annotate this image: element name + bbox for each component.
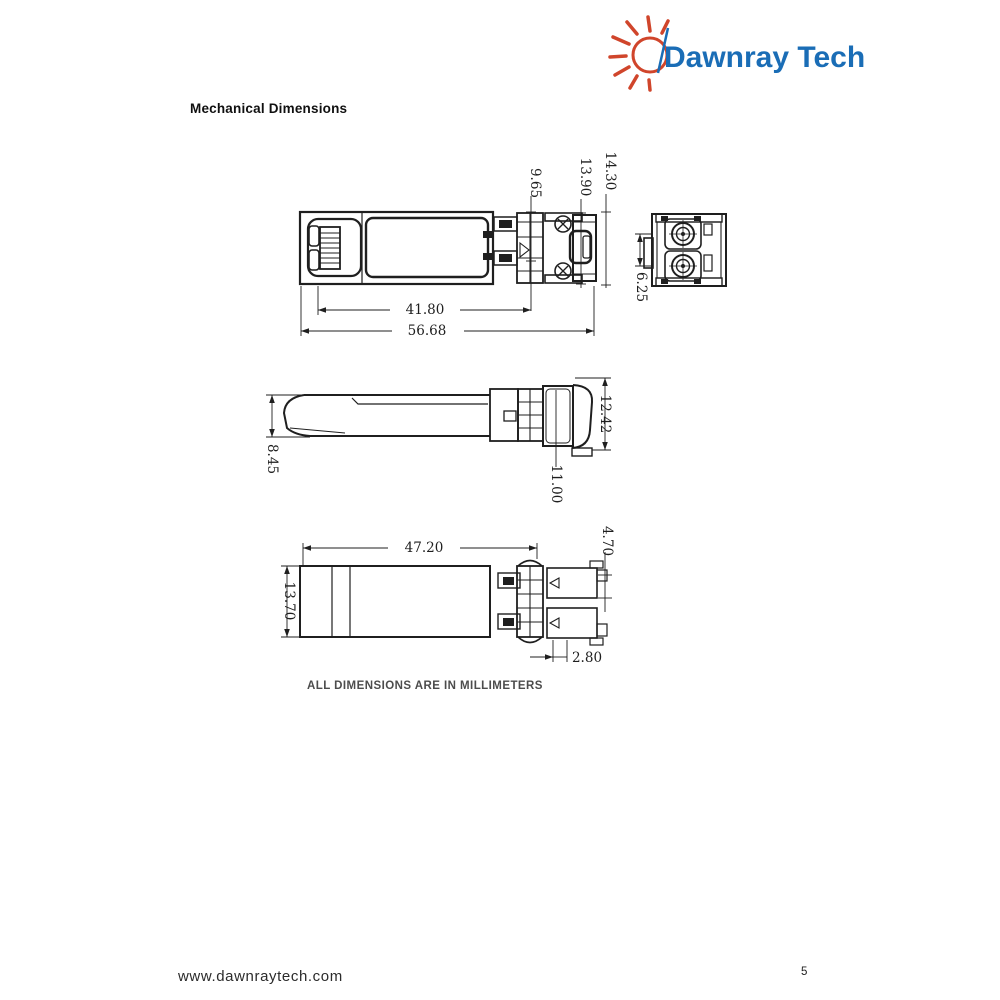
- brand-name: Dawnray Tech: [664, 41, 865, 74]
- dim-overall-length: 56.68: [408, 323, 447, 339]
- rear-view-drawing: 6.25: [633, 214, 726, 302]
- side-view-drawing: 8.45 11.00 12.42: [264, 378, 613, 503]
- mechanical-drawings: 41.80 56.68 9.65 13.90 14.30: [240, 135, 750, 705]
- side-view-outline: [284, 385, 592, 456]
- dim-pad-height: 9.65: [527, 168, 543, 198]
- units-note: ALL DIMENSIONS ARE IN MILLIMETERS: [307, 680, 543, 692]
- dim-front-length: 41.80: [406, 302, 445, 318]
- top-view-outline: [300, 212, 596, 284]
- datasheet-page: Dawnray Tech Mechanical Dimensions: [0, 0, 1000, 1000]
- side-view-dimensions: [266, 378, 611, 467]
- bottom-view-drawing: 47.20 13.70 4.70 2.80: [281, 526, 615, 666]
- dim-ferrule-pitch: 6.25: [633, 272, 649, 302]
- dim-latch-height: 12.42: [597, 395, 613, 434]
- dim-body-length: 47.20: [405, 540, 444, 556]
- dim-nose-height: 8.45: [264, 444, 280, 474]
- dim-overall-height: 14.30: [602, 152, 618, 191]
- dim-body-width: 13.70: [281, 582, 297, 621]
- dim-body-height: 13.90: [577, 158, 593, 197]
- dim-back-height: 11.00: [548, 465, 564, 504]
- dawnray-tech-logo: Dawnray Tech: [600, 8, 880, 98]
- bottom-view-dimensions: [281, 540, 612, 662]
- page-number: 5: [801, 966, 807, 978]
- footer-website-link[interactable]: www.dawnraytech.com: [178, 968, 343, 985]
- bottom-view-outline: [300, 561, 607, 646]
- top-view-drawing: 41.80 56.68 9.65 13.90 14.30: [300, 152, 618, 339]
- dim-tab-height: 4.70: [599, 526, 615, 556]
- dim-tab-offset: 2.80: [572, 650, 602, 666]
- page-title: Mechanical Dimensions: [190, 101, 347, 116]
- rear-view-outline: [644, 214, 726, 286]
